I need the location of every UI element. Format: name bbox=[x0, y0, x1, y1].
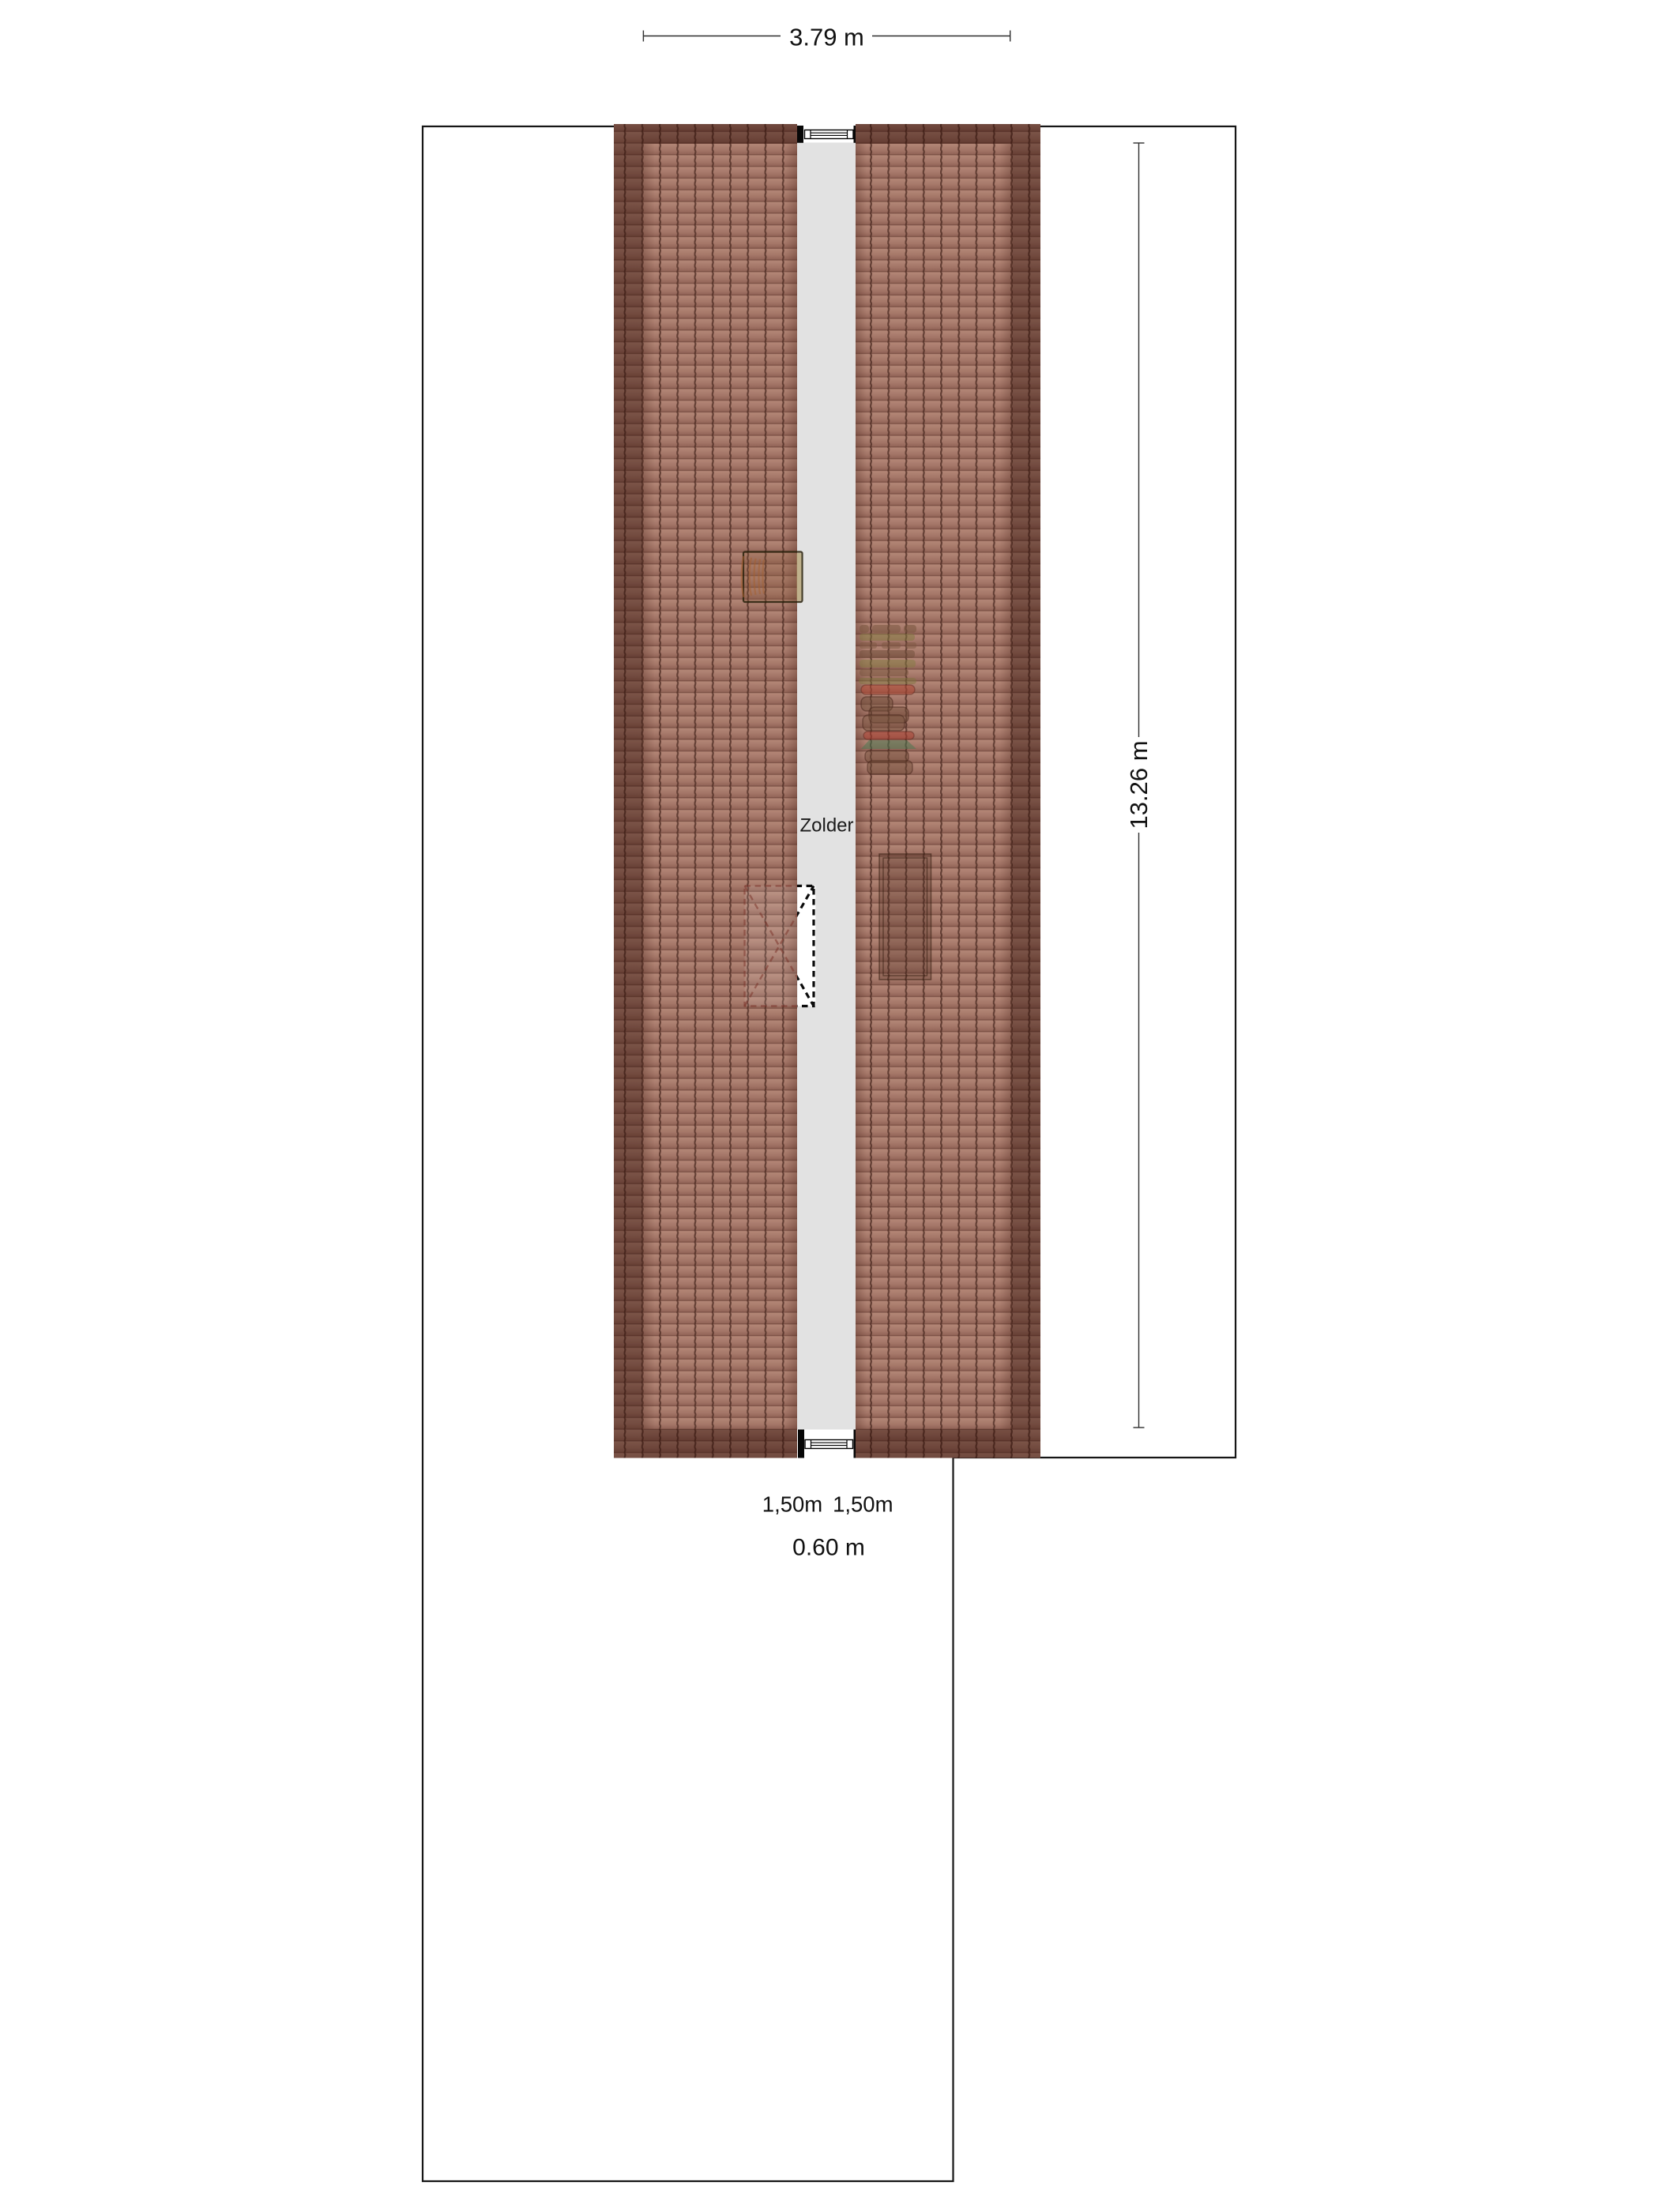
svg-text:3.79 m: 3.79 m bbox=[789, 24, 864, 51]
svg-text:1,50m: 1,50m bbox=[833, 1492, 893, 1517]
svg-text:Zolder: Zolder bbox=[799, 815, 853, 837]
svg-text:1,50m: 1,50m bbox=[762, 1492, 822, 1517]
svg-text:13.26 m: 13.26 m bbox=[1125, 740, 1153, 829]
svg-text:0.60 m: 0.60 m bbox=[792, 1534, 865, 1560]
